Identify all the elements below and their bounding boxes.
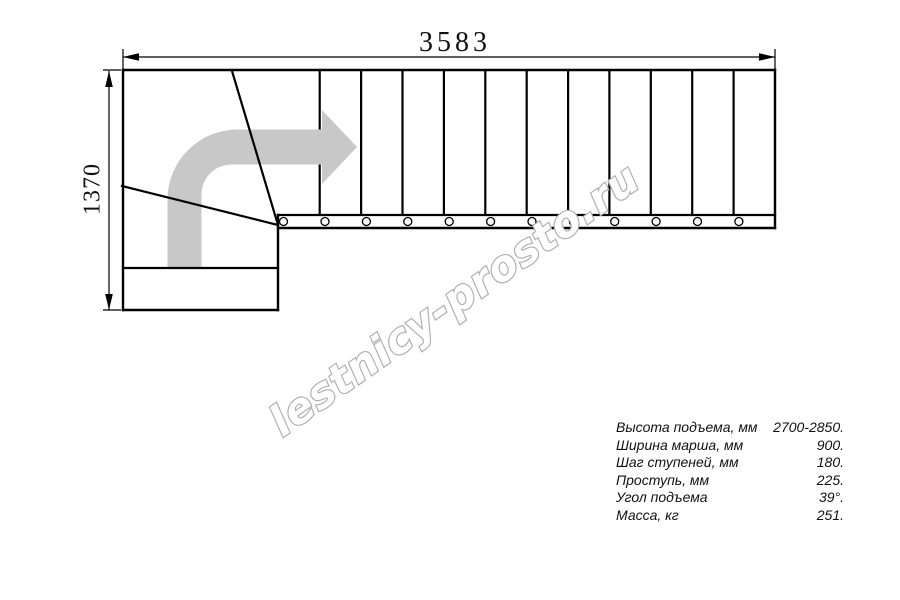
dimension-height-label: 1370: [80, 163, 107, 215]
spec-table: Высота подъема, мм 2700-2850. Ширина мар…: [616, 419, 844, 525]
watermark-text: lestnicy-prosto.ru: [260, 153, 649, 446]
spec-row: Высота подъема, мм 2700-2850.: [616, 419, 844, 437]
interior-lines: [122, 71, 775, 268]
tread-lines: [320, 70, 734, 215]
spec-value: 225.: [817, 472, 844, 490]
spec-value: 251.: [817, 507, 844, 525]
dimension-width-label: 3583: [419, 27, 491, 59]
spec-value: 900.: [817, 437, 844, 455]
spec-row: Проступь, мм 225.: [616, 472, 844, 490]
spec-row: Шаг ступеней, мм 180.: [616, 454, 844, 472]
spec-value: 39°.: [819, 489, 844, 507]
spec-value: 180.: [817, 454, 844, 472]
spec-label: Ширина марша, мм: [616, 437, 743, 455]
spec-row: Ширина марша, мм 900.: [616, 437, 844, 455]
baluster-circles: [280, 218, 743, 226]
spec-row: Масса, кг 251.: [616, 507, 844, 525]
spec-value: 2700-2850.: [773, 419, 844, 437]
spec-label: Шаг ступеней, мм: [616, 454, 739, 472]
spec-label: Высота подъема, мм: [616, 419, 758, 437]
spec-label: Масса, кг: [616, 507, 679, 525]
spec-row: Угол подъема 39°.: [616, 489, 844, 507]
spec-label: Угол подъема: [616, 489, 708, 507]
stair-plan-page: lestnicy-prosto.ru 3583 1370 Высота подъ…: [0, 0, 900, 600]
direction-arrow: [168, 110, 358, 267]
spec-label: Проступь, мм: [616, 472, 709, 490]
